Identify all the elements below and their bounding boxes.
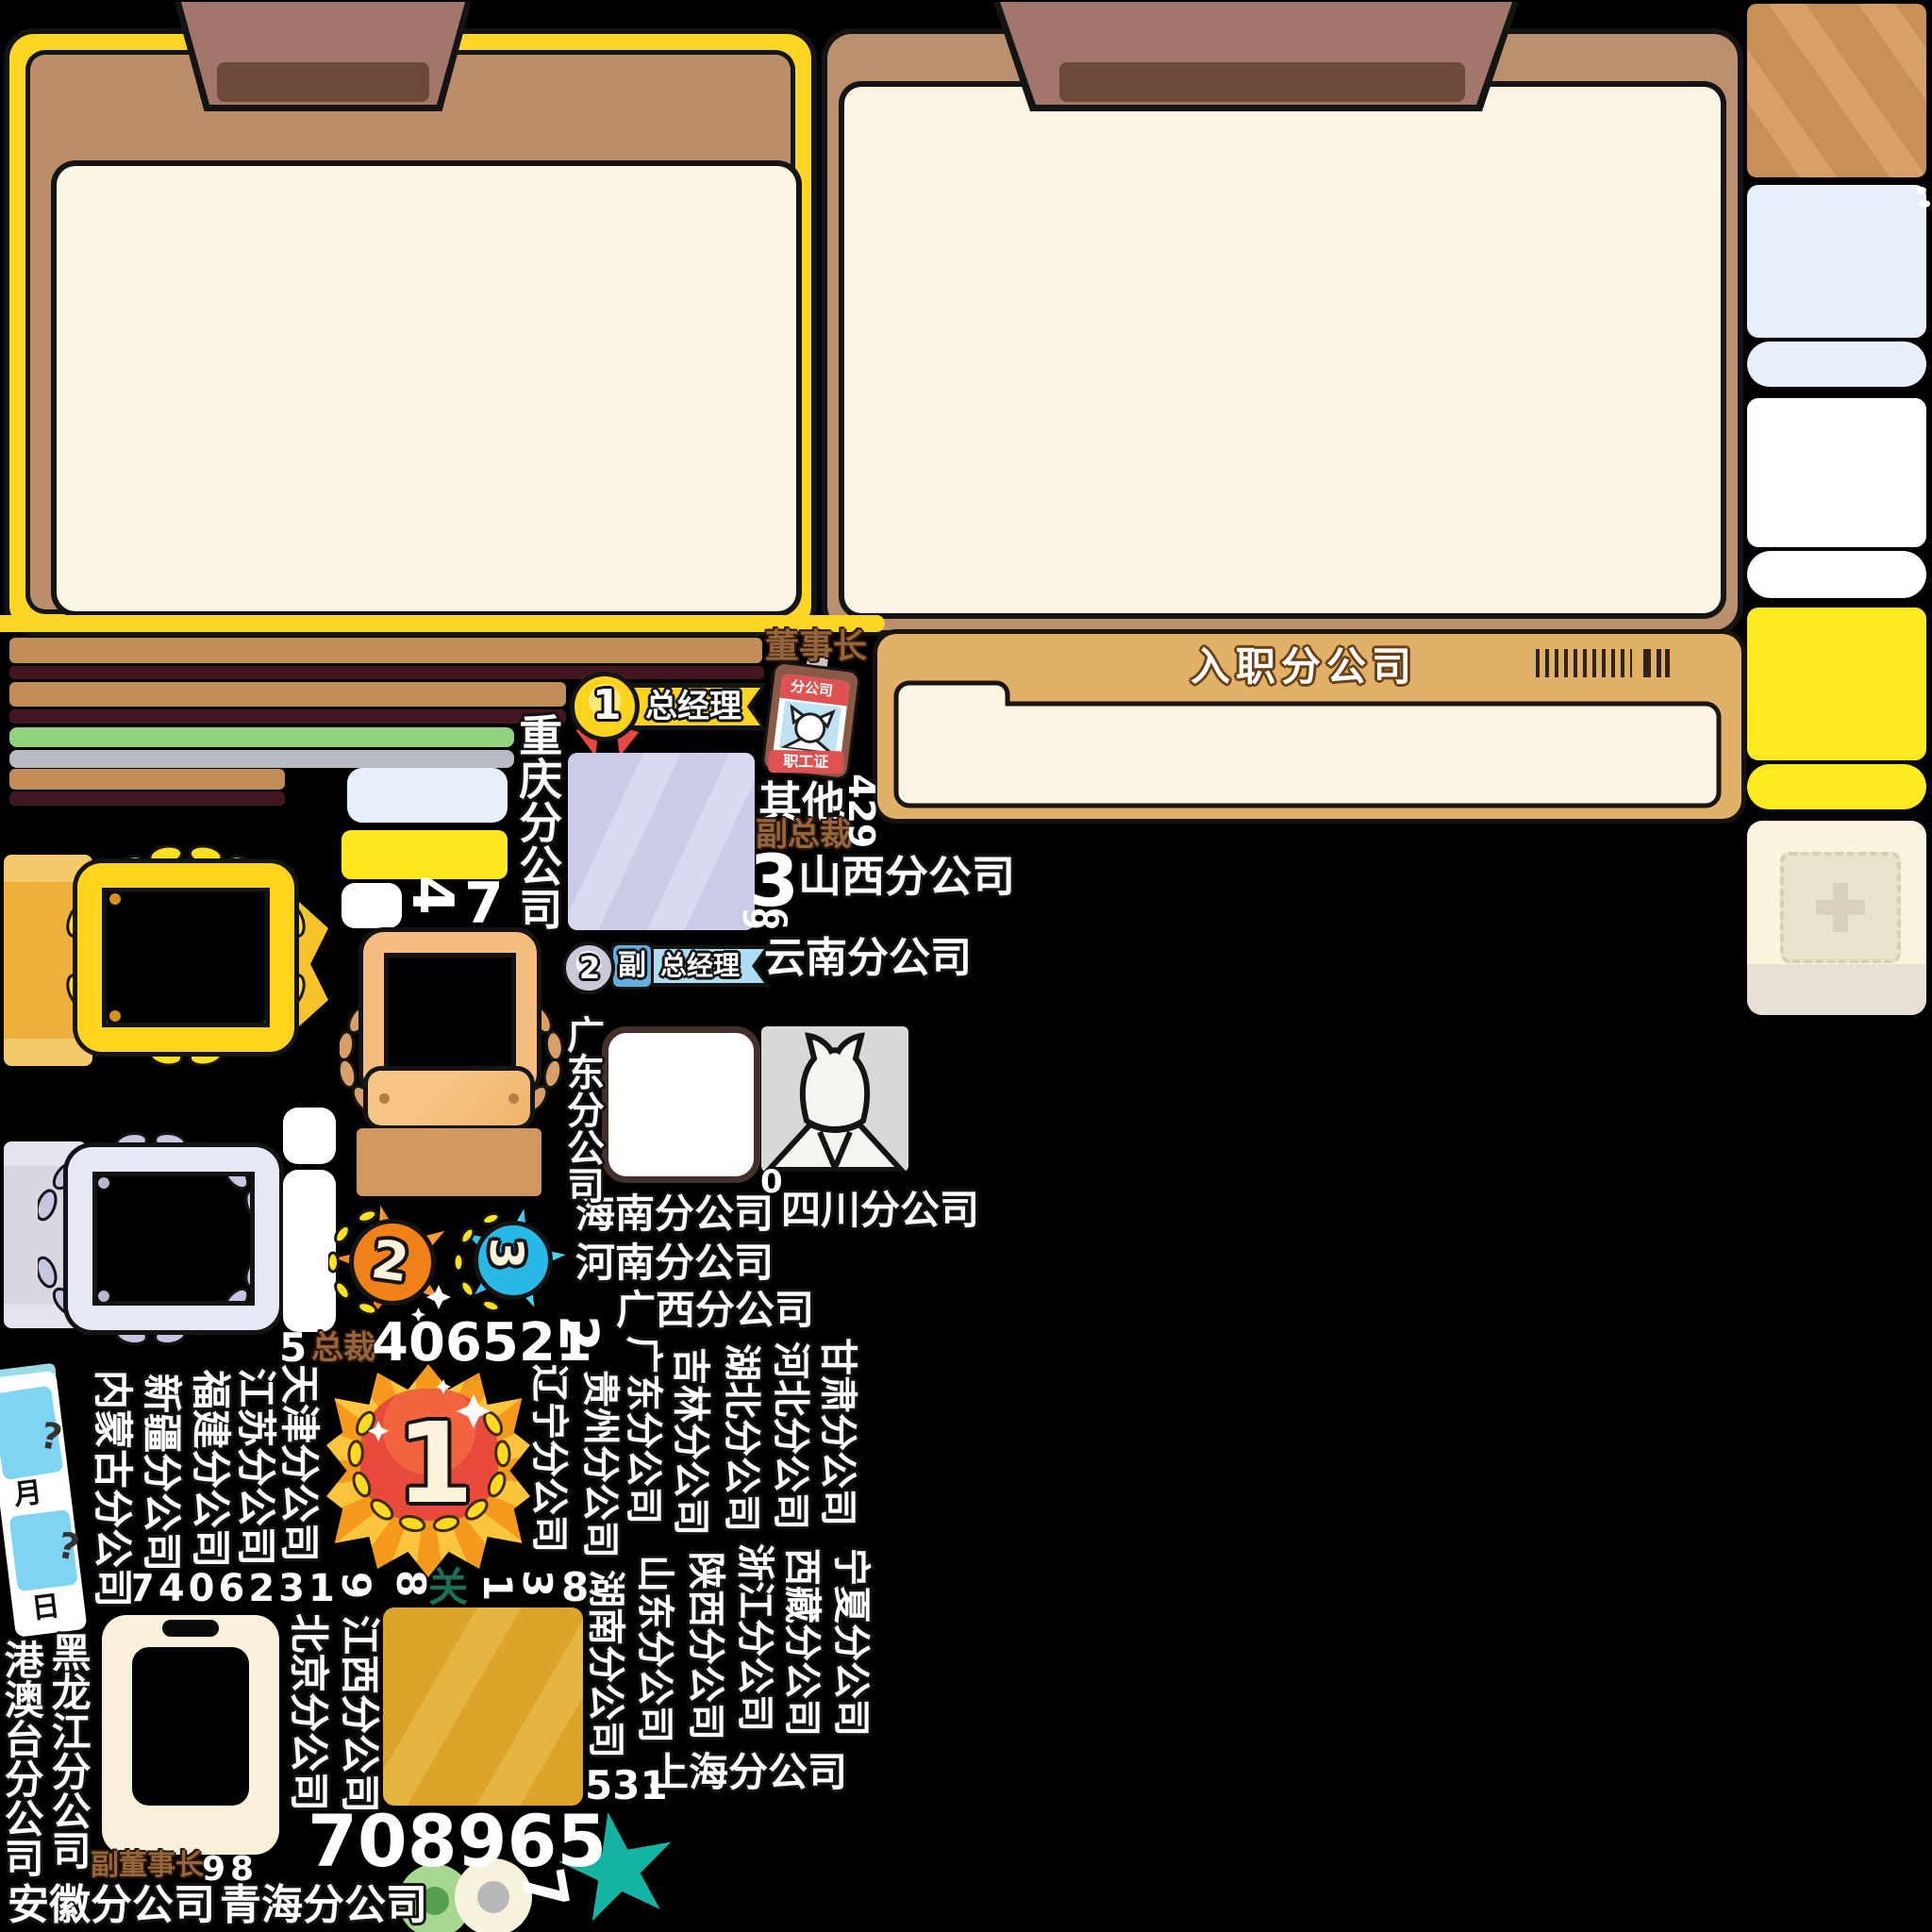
col-gansu: 甘肃分公司 [819, 1338, 857, 1526]
col-tianjin: 天津分公司 [279, 1364, 319, 1562]
col-jiangsu: 江苏分公司 [236, 1368, 275, 1566]
work-badge: 分公司 职工证 [763, 658, 859, 780]
sprite-dot-2 [1919, 200, 1930, 208]
panel-brown-tab[interactable] [993, 2, 1519, 111]
num-7406231: 7406231 [128, 1570, 339, 1607]
col-xizang: 西藏分公司 [783, 1548, 821, 1737]
label-henan: 河南分公司 [575, 1243, 774, 1283]
num-row-3: 3 [517, 1570, 557, 1597]
col-jilin: 吉林分公司 [672, 1347, 709, 1536]
bar-maroon-3 [9, 791, 285, 806]
num-6-rot: 6 [758, 908, 791, 930]
col-liaoning: 辽宁分公司 [530, 1364, 568, 1553]
sprite-atlas-stage: 入职分公司 总经理 1 分公司 [0, 0, 1932, 1932]
laurel-medal2-icon [328, 1207, 441, 1321]
label-guangxi: 广西分公司 [616, 1291, 814, 1330]
col-guangdong-upright: 广东分公司 [562, 1015, 602, 1204]
num-7-rot-bottom: 7 [512, 1864, 577, 1914]
num-row-1: 1 [477, 1574, 517, 1601]
num-5: 5 [279, 1328, 307, 1368]
barcode-icon [1536, 649, 1632, 677]
ribbon-vgm-label: 总经理 [660, 953, 740, 979]
num-98-9: 9 [202, 1853, 225, 1887]
badge-frame-cream [102, 1615, 279, 1855]
col-hubei: 湖北分公司 [723, 1343, 760, 1532]
col-fujian: 福建分公司 [191, 1370, 230, 1568]
bar-maroon-1 [9, 666, 764, 679]
pill-white-small[interactable] [341, 883, 402, 928]
laurel-medal3-icon [455, 1211, 560, 1315]
panel-brown-content [844, 87, 1721, 613]
label-shanxi: 山西分公司 [798, 855, 1015, 898]
frame-gold [77, 863, 294, 1052]
badge-title-label: 职工证 [783, 754, 828, 770]
label-yunnan: 云南分公司 [764, 938, 972, 979]
onboard-title: 入职分公司 [1191, 647, 1417, 687]
col-hebei: 河北分公司 [772, 1341, 809, 1530]
pill-lavender[interactable] [347, 768, 508, 823]
label-dongshizhang: 董事长 [765, 630, 867, 664]
pill-white-top[interactable] [283, 1108, 336, 1164]
bar-grey [9, 750, 514, 768]
bar-tan-1 [9, 638, 762, 663]
medal-first-rank: 1 [396, 1407, 474, 1519]
col-jiangxi: 江西分公司 [340, 1615, 379, 1813]
num-429-rot: 429 [843, 774, 879, 848]
sidebar-lavender-card[interactable] [1747, 185, 1926, 338]
bar-tan-3 [9, 769, 285, 790]
col-hunan: 湖南分公司 [587, 1570, 625, 1758]
col-chongqing: 重庆分公司 [515, 713, 560, 930]
barcode-icon-2 [1643, 649, 1651, 677]
cat-portrait-icon [761, 1026, 908, 1172]
tile-tan [357, 1128, 541, 1196]
bar-maroon-2 [9, 709, 566, 724]
panel-gold-content [57, 166, 796, 611]
col-heilongjiang: 黑龙江分公司 [47, 1632, 89, 1870]
calendar-sprite: ? 月 ? 日 [0, 1362, 92, 1645]
sprite-dot-1 [1917, 187, 1926, 194]
panel-brown [827, 34, 1738, 630]
bar-tan-2 [9, 682, 566, 707]
num-531: 531 [585, 1766, 668, 1806]
ribbon-gm-label: 总经理 [645, 691, 741, 723]
label-fudongshizhang: 副董事长 [91, 1852, 204, 1880]
barcode-icon-3 [1657, 649, 1674, 677]
col-xinjiang: 新疆分公司 [142, 1374, 181, 1572]
col-guizhou: 贵州分公司 [581, 1370, 619, 1558]
label-hainan: 海南分公司 [575, 1194, 774, 1234]
label-qinghai: 青海分公司 [220, 1885, 427, 1926]
sidebar-white-card[interactable] [1747, 398, 1926, 547]
col-ningxia: 宁夏分公司 [832, 1548, 870, 1737]
tile-gold-large[interactable] [383, 1607, 583, 1806]
sidebar-yellow-card[interactable] [1747, 608, 1926, 760]
num-3-big: 3 [749, 845, 799, 917]
yellow-strip [0, 615, 885, 632]
sidebar-yellow-pill[interactable] [1747, 764, 1926, 809]
panel-gold [9, 34, 811, 630]
tile-lavender-large[interactable] [568, 753, 755, 930]
sidebar-patch-card[interactable] [1747, 821, 1926, 1015]
col-neimenggu: 内蒙古分公司 [92, 1370, 132, 1607]
num-row-9: 9 [336, 1572, 375, 1599]
ribbon-vgm-prefix: 副 [618, 952, 646, 980]
calendar-day: 日 [30, 1592, 61, 1624]
col-shaanxi: 陕西分公司 [687, 1552, 724, 1740]
num-7: 7 [464, 875, 504, 932]
num-row-8: 8 [391, 1570, 430, 1597]
col-shandong: 山东分公司 [636, 1555, 674, 1743]
label-guan: 关 [428, 1568, 468, 1607]
onboard-bar: 入职分公司 [877, 634, 1741, 819]
panel-gold-tab[interactable] [175, 2, 472, 111]
label-anhui: 安徽分公司 [8, 1885, 215, 1926]
medal-vgm-rank: 2 [579, 953, 600, 983]
bar-green [9, 727, 514, 747]
calendar-month: 月 [12, 1478, 43, 1509]
label-sichuan: 四川分公司 [781, 1191, 979, 1230]
sidebar-white-pill[interactable] [1747, 551, 1926, 598]
label-zongcai: 总裁 [311, 1332, 375, 1364]
frame-silver [68, 1147, 279, 1330]
frame-brown-plaque [368, 1071, 530, 1125]
plus-icon-v [1833, 883, 1848, 932]
num-98-8: 8 [230, 1853, 254, 1887]
sidebar-copper-tile[interactable] [1747, 4, 1926, 177]
col-zhejiang: 浙江分公司 [736, 1543, 774, 1732]
col-guangdong-rot: 广东分公司 [625, 1336, 662, 1524]
num-2-rot: 2 [551, 1315, 604, 1352]
photo-slot-white[interactable] [602, 1026, 760, 1183]
col-beijing: 北京分公司 [289, 1613, 328, 1811]
sidebar-lavender-pill[interactable] [1747, 341, 1926, 387]
patch-dashed-area [1780, 852, 1901, 963]
badge-cat-photo-icon [779, 700, 841, 754]
label-shanghai: 上海分公司 [649, 1753, 847, 1792]
num-4-rot: 4 [404, 875, 460, 915]
num-0: 0 [760, 1166, 783, 1198]
col-gangaotai: 港澳台分公司 [0, 1640, 42, 1877]
badge-slot-icon [162, 1620, 219, 1637]
medal-gm-rank: 1 [592, 685, 622, 726]
